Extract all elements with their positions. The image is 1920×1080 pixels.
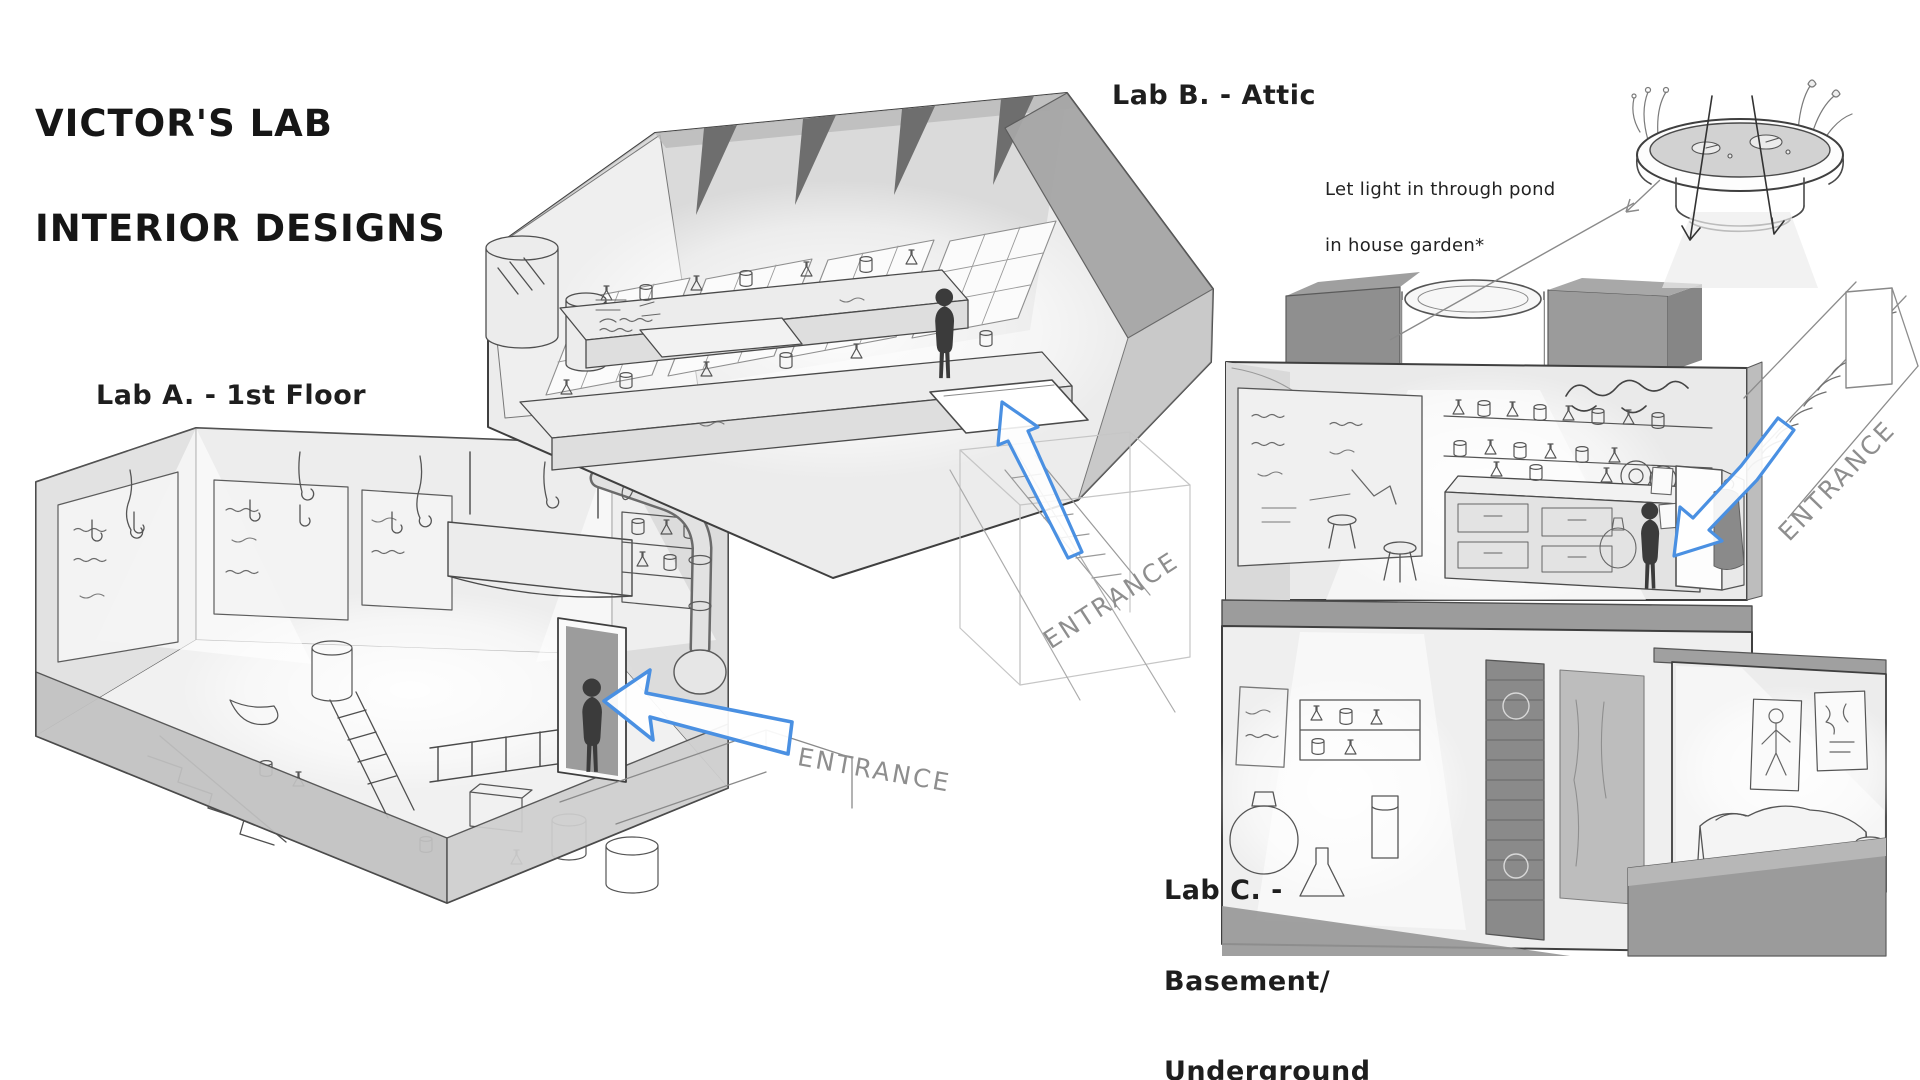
- page-title: VICTOR'S LAB INTERIOR DESIGNS: [35, 98, 446, 256]
- lab-a-label: Lab A. - 1st Floor: [96, 380, 366, 411]
- lab-c-label: Lab C. - Basement/ Underground: [1164, 868, 1371, 1080]
- lab-c-sketch: [1210, 272, 1918, 956]
- pond-light-cone: [1662, 212, 1818, 288]
- lab-b-label: Lab B. - Attic: [1112, 80, 1316, 111]
- page-title-line2: INTERIOR DESIGNS: [35, 207, 446, 250]
- page-title-line1: VICTOR'S LAB: [35, 102, 333, 145]
- lab-c-column: [1486, 660, 1544, 940]
- pond-annotation: Let light in through pond in house garde…: [1325, 176, 1556, 260]
- lab-c-blackboard: [1238, 388, 1422, 566]
- design-sheet: VICTOR'S LAB INTERIOR DESIGNS Lab A. - 1…: [0, 0, 1920, 1080]
- lab-c-outer-door: [1846, 288, 1892, 388]
- pond-sketch: [1632, 80, 1852, 288]
